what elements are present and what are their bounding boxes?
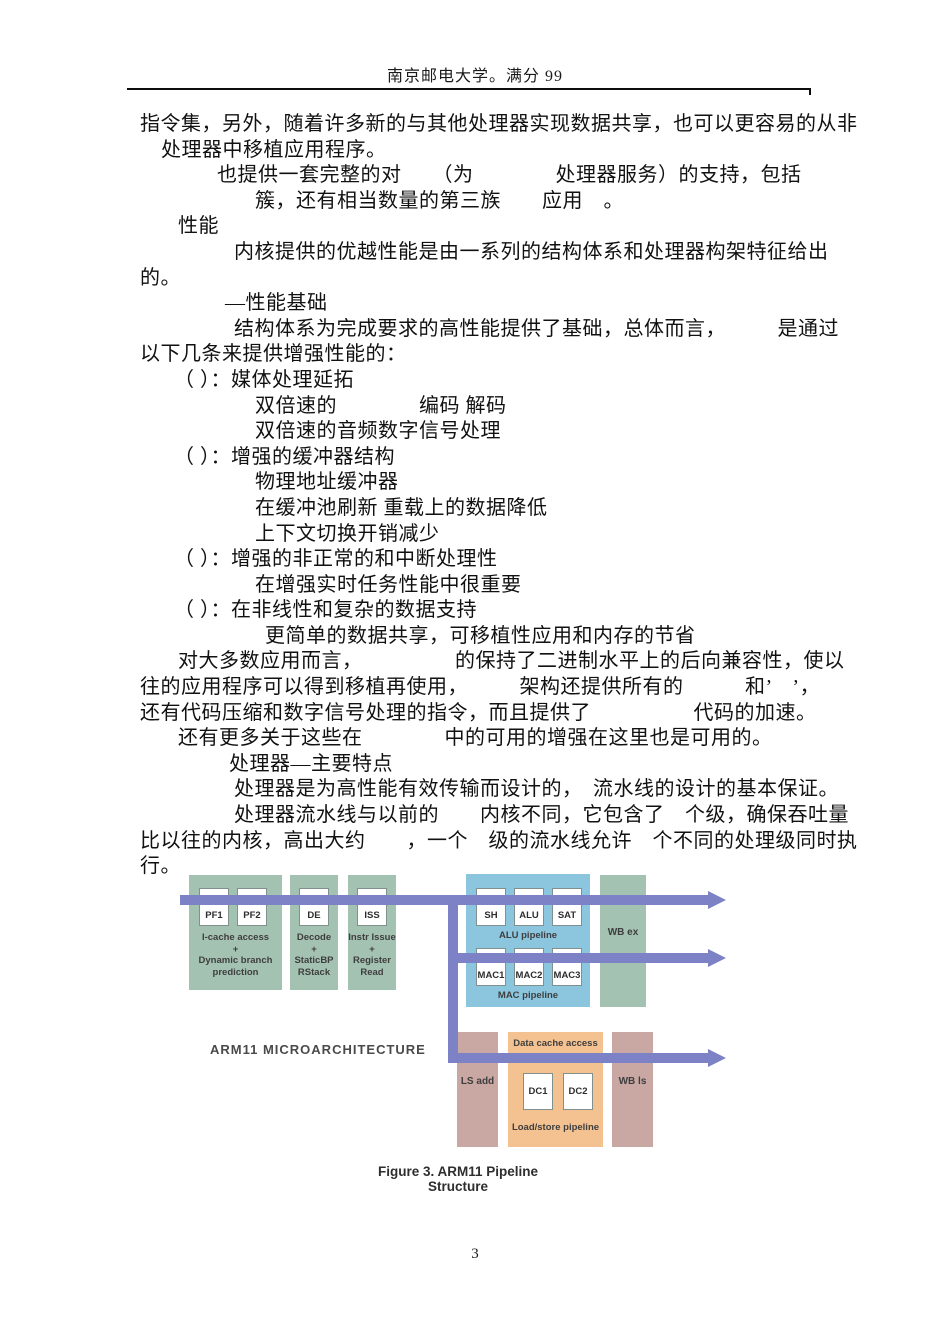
text-line: （ ）：媒体处理延拓 — [140, 368, 900, 394]
mac-flow-arrow-head — [708, 949, 726, 967]
fetch-stage-block: PF1 PF2 I-cache access + Dynamic branch … — [189, 875, 282, 990]
writeback-ls-label: WB ls — [612, 1076, 653, 1088]
document-page: 南京邮电大学。满分 99 指令集，另外，随着许多新的与其他处理器实现数据共享，也… — [0, 0, 950, 1344]
data-cache-access-label: Data cache access — [508, 1038, 603, 1050]
text-line: 双倍速的 编码 解码 — [140, 394, 900, 420]
text-line: 以下几条来提供增强性能的： — [140, 342, 900, 368]
writeback-ls-block: WB ls — [612, 1032, 653, 1147]
issue-stage-block: ISS Instr Issue + Register Read — [348, 875, 396, 990]
header-rule — [127, 88, 811, 90]
text-line: （ ）：在非线性和复杂的数据支持 — [140, 598, 900, 624]
flow-branch-vertical-line — [448, 895, 458, 1063]
text-line: 更简单的数据共享，可移植性应用和内存的节省 — [140, 624, 900, 650]
issue-stage-label: Instr Issue + Register Read — [348, 932, 396, 978]
header-rule-tick — [809, 88, 811, 95]
body-text: 指令集，另外，随着许多新的与其他处理器实现数据共享，也可以更容易的从非 处理器中… — [140, 112, 900, 880]
text-line: 还有更多关于这些在 中的可用的增强在这里也是可用的。 — [140, 726, 900, 752]
pipeline-stage-dc2: DC2 — [563, 1073, 593, 1110]
text-line: 双倍速的音频数字信号处理 — [140, 419, 900, 445]
text-line: 在增强实时任务性能中很重要 — [140, 573, 900, 599]
loadstore-pipeline-label: Load/store pipeline — [508, 1122, 603, 1134]
pipeline-stage-sat: SAT — [552, 888, 582, 926]
alu-flow-arrow-head — [708, 891, 726, 909]
text-line: 比以往的内核，高出大约 ，一个 级的流水线允许 个不同的处理级同时执 — [140, 829, 900, 855]
loadstore-flow-arrow-line — [448, 1053, 708, 1063]
text-line: 在缓冲池刷新 重载上的数据降低 — [140, 496, 900, 522]
arm11-pipeline-diagram: PF1 PF2 I-cache access + Dynamic branch … — [180, 872, 780, 1164]
text-line: 的。 — [140, 266, 900, 292]
text-line: —性能基础 — [140, 291, 900, 317]
pipeline-stage-sh: SH — [476, 888, 506, 926]
pipeline-stage-pf2: PF2 — [237, 888, 267, 926]
text-line: 上下文切换开销减少 — [140, 522, 900, 548]
alu-pipeline-label: ALU pipeline — [466, 930, 590, 942]
text-line: 指令集，另外，随着许多新的与其他处理器实现数据共享，也可以更容易的从非 — [140, 112, 900, 138]
figure-caption: Figure 3. ARM11 Pipeline Structure — [350, 1164, 566, 1194]
text-line: 结构体系为完成要求的高性能提供了基础，总体而言， 是通过 — [140, 317, 900, 343]
text-line: 往的应用程序可以得到移植再使用， 架构还提供所有的 和’ ’， — [140, 675, 900, 701]
loadstore-flow-arrow-head — [708, 1049, 726, 1067]
ls-add-label: LS add — [457, 1076, 498, 1088]
pipeline-stage-de: DE — [299, 888, 329, 926]
text-line: （ ）：增强的非正常的和中断处理性 — [140, 547, 900, 573]
alu-flow-arrow-line — [180, 895, 708, 905]
execute-pipelines-block: SH ALU SAT ALU pipeline MAC1 MAC2 MAC3 M… — [466, 874, 590, 1007]
mac-pipeline-label: MAC pipeline — [466, 990, 590, 1002]
loadstore-pipeline-block: Data cache access DC1 DC2 Load/store pip… — [508, 1032, 603, 1147]
decode-stage-block: DE Decode + StaticBP RStack — [290, 875, 338, 990]
text-line: 也提供一套完整的对 （为 处理器服务）的支持，包括 — [140, 163, 900, 189]
pipeline-stage-alu: ALU — [514, 888, 544, 926]
pipeline-stage-pf1: PF1 — [199, 888, 229, 926]
writeback-ex-label: WB ex — [600, 927, 646, 939]
text-line: 处理器—主要特点 — [140, 752, 900, 778]
page-number: 3 — [0, 1246, 950, 1263]
text-line: 簇，还有相当数量的第三族 应用 。 — [140, 189, 900, 215]
text-line: （ ）：增强的缓冲器结构 — [140, 445, 900, 471]
decode-stage-label: Decode + StaticBP RStack — [290, 932, 338, 978]
text-line: 处理器流水线与以前的 内核不同，它包含了 个级，确保吞吐量 — [140, 803, 900, 829]
page-header-title: 南京邮电大学。满分 99 — [0, 62, 950, 86]
text-line: 还有代码压缩和数字信号处理的指令，而且提供了 代码的加速。 — [140, 701, 900, 727]
text-line: 对大多数应用而言， 的保持了二进制水平上的后向兼容性，使以 — [140, 649, 900, 675]
text-line: 内核提供的优越性能是由一系列的结构体系和处理器构架特征给出 — [140, 240, 900, 266]
text-line: 物理地址缓冲器 — [140, 470, 900, 496]
text-line: 处理器是为高性能有效传输而设计的， 流水线的设计的基本保证。 — [140, 777, 900, 803]
text-line: 性能 — [140, 214, 900, 240]
pipeline-stage-dc1: DC1 — [523, 1073, 553, 1110]
pipeline-stage-iss: ISS — [357, 888, 387, 926]
figure-title: ARM11 MICROARCHITECTURE — [210, 1042, 426, 1057]
ls-add-block: LS add — [457, 1032, 498, 1147]
text-line: 处理器中移植应用程序。 — [140, 138, 900, 164]
mac-flow-arrow-line — [448, 953, 708, 963]
fetch-stage-label: I-cache access + Dynamic branch predicti… — [189, 932, 282, 978]
